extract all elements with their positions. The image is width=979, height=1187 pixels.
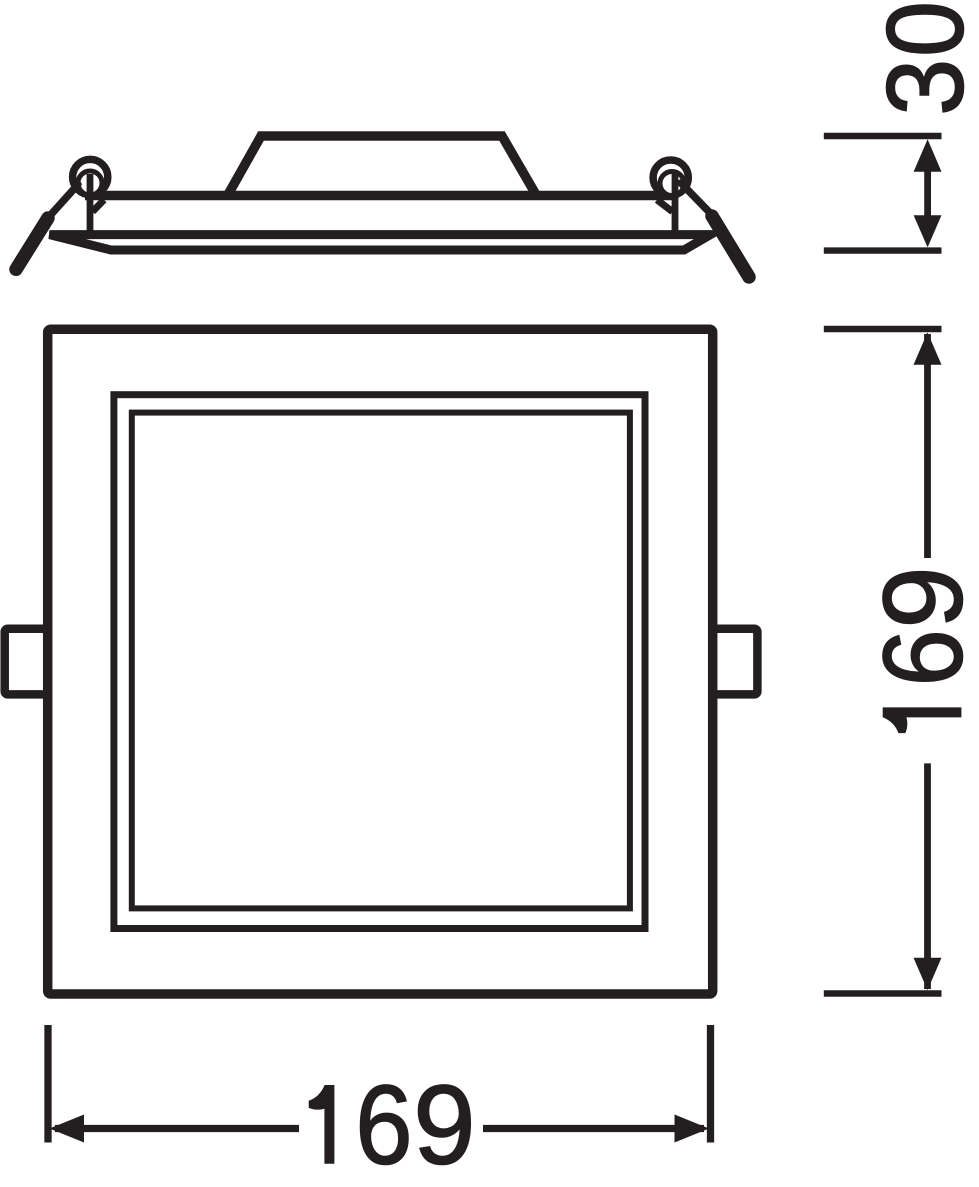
svg-text:0: 0 <box>865 1 979 57</box>
svg-text:3: 3 <box>865 59 979 116</box>
